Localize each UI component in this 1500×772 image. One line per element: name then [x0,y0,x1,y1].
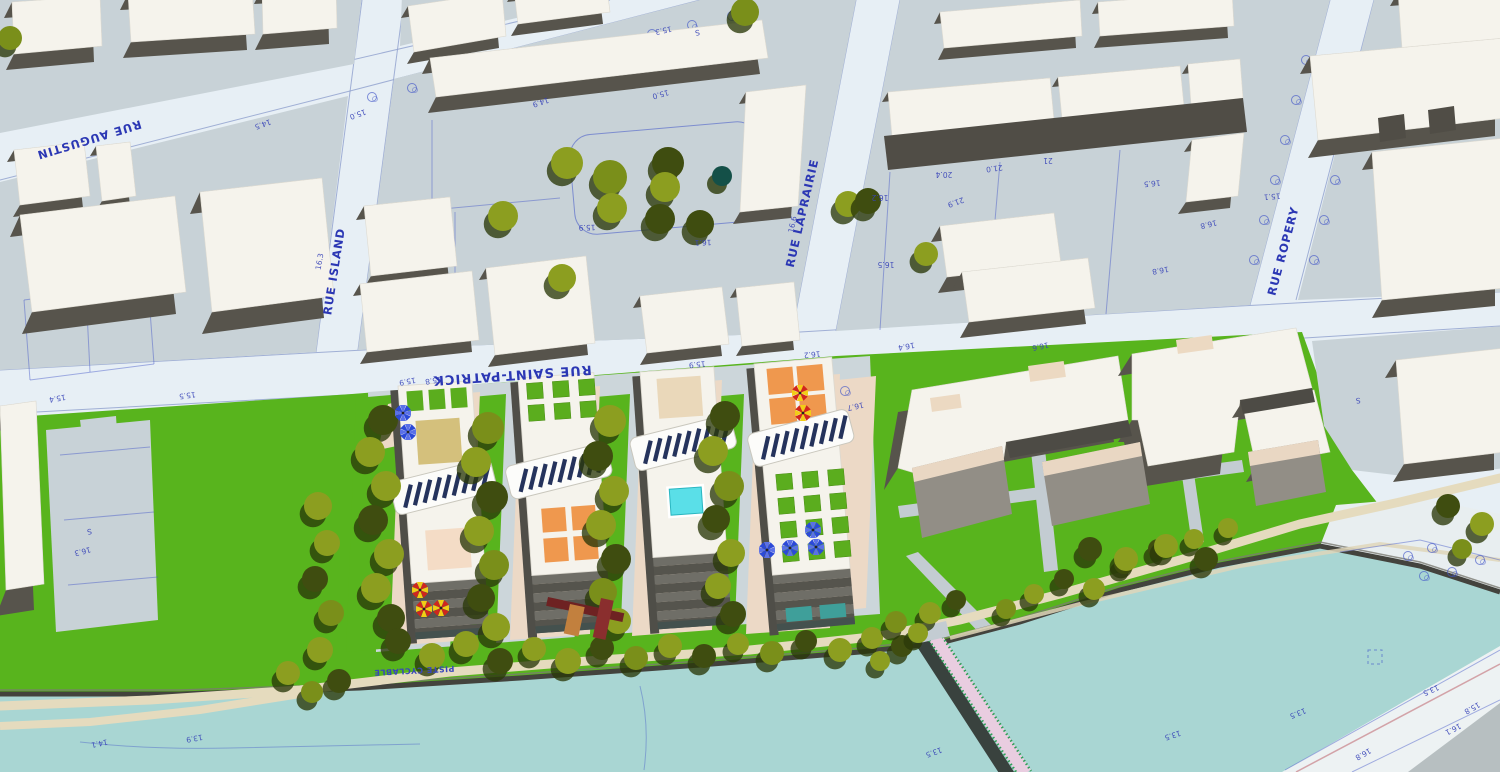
tree [1083,578,1105,600]
tree [464,516,494,546]
tree [374,539,404,569]
umbrella-pole [419,589,422,592]
umbrella-pole [799,392,802,395]
umbrella-pole [402,412,405,415]
tree [358,505,388,535]
roof-garden-plot [526,382,543,399]
tree [720,601,746,627]
tree [467,584,495,612]
tree [327,669,351,693]
tree [597,193,627,223]
tree [593,160,627,194]
tree [307,637,333,663]
tree [828,638,852,662]
patio-umbrella [416,601,432,617]
tree [1452,539,1472,559]
tree [472,412,504,444]
tree [551,147,583,179]
spot-elevation: 15.1 [1263,191,1281,201]
roof-deck-tan [657,376,704,419]
tree [1114,547,1138,571]
roof-garden-plot [552,380,569,397]
roof-garden-plot [778,497,795,514]
tree [1218,518,1238,538]
roof-garden-plot [804,495,821,512]
patio-umbrella [795,405,811,421]
tree [453,631,479,657]
umbrella-pole [766,549,769,552]
base-deck-teal [785,606,812,622]
roof-terrace-orange [766,367,794,395]
tree [710,401,740,431]
building-roof [1396,348,1500,464]
parking-lot [46,420,158,632]
tree [861,627,883,649]
roof-terrace-orange [541,507,567,533]
spot-elevation: 20.4 [935,170,952,179]
spot-elevation: 15.9 [578,223,595,233]
tree [583,441,613,471]
roof-garden-plot [428,389,445,410]
tree [658,634,682,658]
tree [885,611,907,633]
tree [590,636,614,660]
umbrella-pole [802,412,805,415]
building-roof [740,85,806,212]
building-roof [1372,138,1500,300]
spot-elevation: 16.5 [877,260,894,269]
building-roof [262,0,337,34]
site-plan-rendering: RUE AUGUSTIN RUE ISLAND RUE SAINT-PATRIC… [0,0,1500,772]
site-plan-canvas: RUE AUGUSTIN RUE ISLAND RUE SAINT-PATRIC… [0,0,1500,772]
roof-garden-plot [578,379,595,396]
tree [650,172,680,202]
tree [996,599,1016,619]
umbrella-pole [789,547,792,550]
tree [599,476,629,506]
tree [377,604,405,632]
tree [717,539,745,567]
roof-garden-plot [832,516,849,533]
building-roof [736,282,800,346]
tree [727,633,749,655]
patio-umbrella [400,424,416,440]
spot-elevation: 21 [1043,156,1053,165]
tree [488,201,518,231]
conifer-tree [712,166,732,186]
tree [368,405,398,435]
tree [555,648,581,674]
tree [276,661,300,685]
umbrella-pole [407,431,410,434]
spot-elevation: 15.9 [688,359,706,370]
tree [301,681,323,703]
roof-garden-plot [828,469,845,486]
patio-umbrella [412,582,428,598]
tree [361,573,391,603]
tree [548,264,576,292]
patio-umbrella [792,385,808,401]
roof-garden-plot [776,473,793,490]
roof-garden-plot [780,521,797,538]
building-roof [364,197,457,276]
spot-elevation: 16.1 [694,238,711,248]
tree [946,590,966,610]
patio-umbrella [395,405,411,421]
tree [914,242,938,266]
building-roof [1188,59,1243,104]
roof-deck-khaki [415,418,462,465]
tree [522,637,546,661]
patio-umbrella [782,540,798,556]
spot-elevation: 16.2 [871,193,888,202]
base-deck-teal [819,603,846,619]
tree [314,530,340,556]
tree [318,600,344,626]
building-roof [200,178,334,312]
tree [1078,537,1102,561]
tree [1194,547,1218,571]
tree [1470,512,1494,536]
roof-garden-plot [554,402,571,419]
roof-garden-plot [834,540,851,557]
spot-elevation: 16.5 [1143,178,1161,189]
tree [870,651,890,671]
tree [385,628,411,654]
tree [760,641,784,665]
tree [586,510,616,540]
tree [705,573,731,599]
tree [482,613,510,641]
tree [487,648,513,674]
tree [795,630,817,652]
building-roof [96,142,136,201]
tree [698,436,728,466]
roof-terrace-orange [543,537,569,563]
parking-driveway [80,416,118,452]
patio-umbrella [805,522,821,538]
rooftop-pool [669,487,703,515]
patio-umbrella [433,600,449,616]
umbrella-pole [440,607,443,610]
roof-garden-plot [830,493,847,510]
umbrella-pole [423,608,426,611]
building-roof [20,196,186,312]
tree [371,471,401,501]
building-notch [1428,106,1456,134]
tree [479,550,509,580]
tree [302,566,328,592]
roof-terrace-orange [769,397,797,425]
spot-elevation: 16.2 [803,349,821,360]
tree [476,481,508,513]
tree [601,544,631,574]
tree [686,210,714,238]
tree [624,646,648,670]
roof-garden-plot [528,404,545,421]
building-roof [360,271,479,352]
building-roof [640,287,729,353]
tree [1436,494,1460,518]
umbrella-pole [812,529,815,532]
tree [1024,584,1044,604]
umbrella-pole [815,546,818,549]
tree [461,447,491,477]
tree [304,492,332,520]
patio-umbrella [808,539,824,555]
roof-garden-plot [802,471,819,488]
tree [692,644,716,668]
tree [355,437,385,467]
tree [714,471,744,501]
tree [594,405,626,437]
building-notch [1378,114,1406,142]
roof-garden-plot [580,401,597,418]
tree [908,623,928,643]
building-roof [12,0,102,54]
building-roof [486,256,595,355]
tree [1184,529,1204,549]
building-roof [1186,133,1244,202]
tree [919,602,941,624]
roof-garden-plot [450,387,467,408]
patio-umbrella [759,542,775,558]
tree [702,505,730,533]
tree [1154,534,1178,558]
tree [645,204,675,234]
tree [1054,569,1074,589]
building-roof [0,401,44,590]
